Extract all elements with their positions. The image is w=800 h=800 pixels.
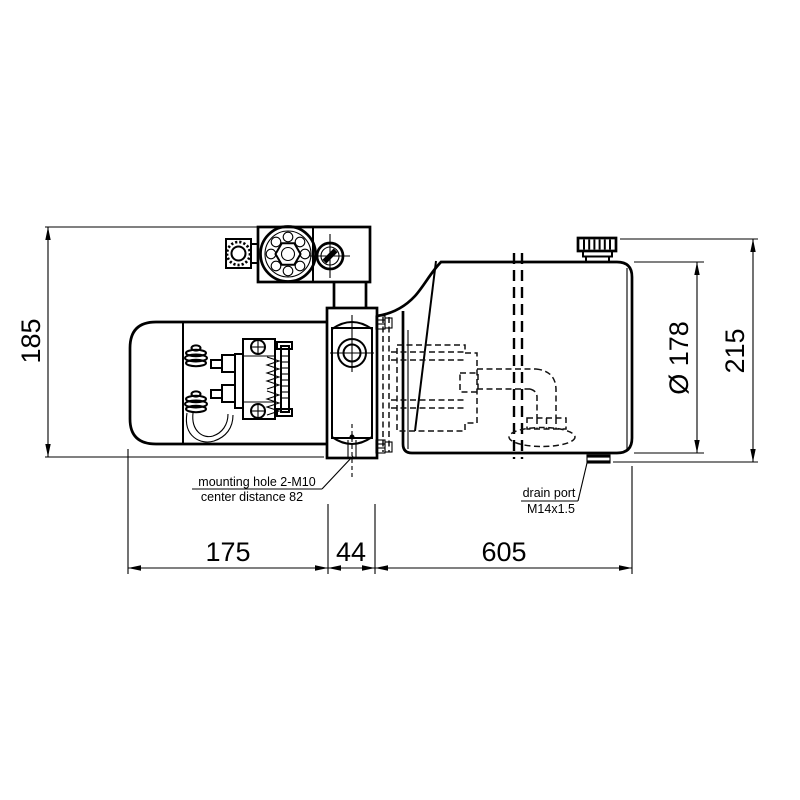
mounting-hole — [348, 424, 356, 477]
solenoid-screw-bottom — [251, 404, 265, 418]
dim-label-605: 605 — [481, 537, 526, 567]
drain-port-note: drain port M14x1.5 — [521, 463, 587, 516]
annotations: mounting hole 2-M10 center distance 82 d… — [192, 456, 587, 516]
terminal-stud-top — [185, 345, 207, 366]
tank-bend-line — [415, 261, 436, 431]
drain-plug — [587, 455, 610, 463]
pump-shaft — [460, 373, 478, 392]
solenoid-screw-top — [251, 340, 265, 354]
oil-tank — [377, 238, 632, 463]
start-solenoid — [211, 339, 292, 419]
suction-tube-hidden — [477, 369, 556, 418]
mounting-hole-note: mounting hole 2-M10 center distance 82 — [192, 456, 353, 504]
mounting-hole-note-line1: mounting hole 2-M10 — [198, 475, 315, 489]
hydraulic-power-unit-drawing: 185 Ø 178 215 175 44 605 — [0, 0, 800, 800]
mounting-hole-note-line2: center distance 82 — [201, 490, 303, 504]
coil-fitting — [226, 239, 258, 268]
solenoid-mount-plate — [277, 342, 292, 416]
valve-block — [226, 227, 370, 309]
dc-motor — [130, 322, 327, 444]
dim-label-215: 215 — [720, 328, 750, 373]
dim-bottom-chain: 175 44 605 — [128, 537, 632, 571]
coupling-fitting — [261, 227, 316, 282]
relief-valve-screw — [310, 234, 350, 278]
dim-overall-height: 215 — [720, 239, 756, 462]
dim-motor-height: 185 — [16, 227, 51, 457]
dimensions: 185 Ø 178 215 175 44 605 — [16, 227, 758, 574]
dim-label-44: 44 — [336, 537, 366, 567]
terminal-wire — [186, 413, 233, 442]
dim-tank-diameter: Ø 178 — [664, 262, 700, 453]
dim-label-175: 175 — [205, 537, 250, 567]
solenoid-terminal-bottom — [211, 385, 235, 402]
gear-pump-hidden — [383, 317, 575, 452]
solenoid-terminal-top — [211, 355, 235, 372]
breather-cap — [578, 238, 616, 262]
technical-drawing-canvas: 185 Ø 178 215 175 44 605 — [0, 0, 800, 800]
suction-strainer-hidden — [509, 418, 575, 447]
dim-label-185: 185 — [16, 318, 46, 363]
drain-port-note-line1: drain port — [523, 486, 576, 500]
drain-port-note-line2: M14x1.5 — [527, 502, 575, 516]
terminal-stud-bottom — [185, 391, 207, 412]
dim-label-178: Ø 178 — [664, 321, 694, 395]
contact-spring-top — [267, 357, 279, 389]
